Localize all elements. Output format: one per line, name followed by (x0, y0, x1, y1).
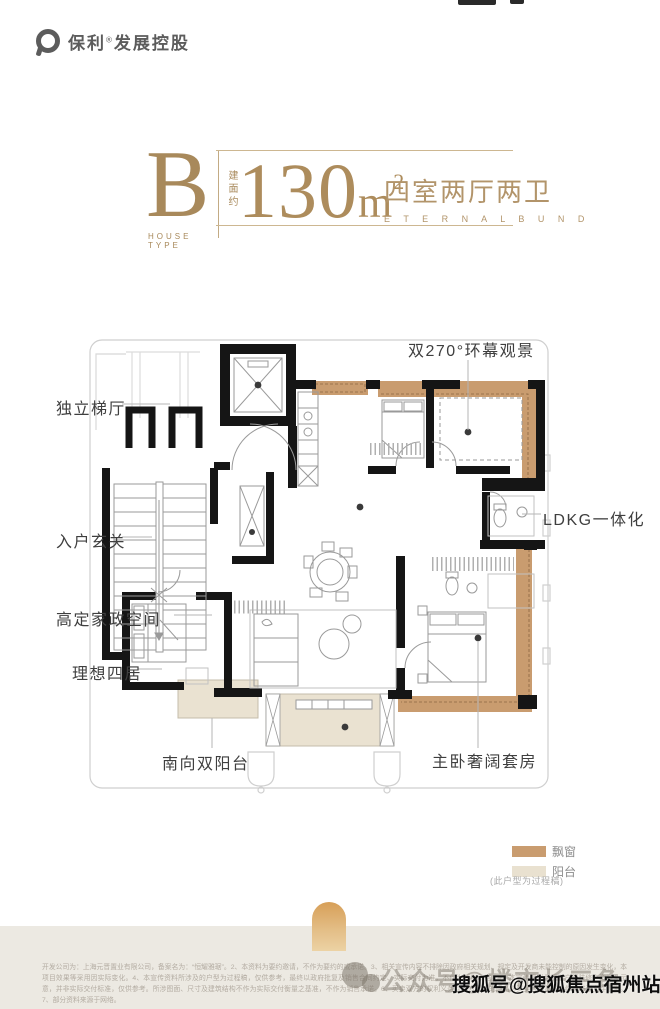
callout-panoramic-view: 双270°环幕观景 (408, 337, 535, 361)
doors (158, 424, 506, 668)
callout-ldkg: LDKG一体化 (543, 506, 645, 530)
legend-note: (此户型为过程稿) (490, 874, 564, 887)
elevator-shaft (230, 354, 286, 416)
wechat-icon-small (362, 974, 380, 992)
legend-item-bay-window: 飘窗 (512, 843, 576, 860)
arch-motif (312, 902, 346, 951)
callout-master-suite: 主卧奢阔套房 (432, 748, 537, 772)
legend-label: 飘窗 (552, 843, 576, 860)
corner-bedroom (440, 398, 522, 460)
bollard-left (248, 752, 274, 786)
bay-window-swatch (512, 846, 546, 857)
sofa (250, 610, 396, 688)
watermark-sohu: 搜狐号@搜狐焦点宿州站 (452, 970, 660, 997)
dining-table (304, 542, 357, 601)
poster-page: 保利®发展控股 B HOUSE TYPE 建面约 130m2 四室两厅两卫 E … (0, 0, 660, 1009)
callout-housekeeping-space: 高定家政空间 (56, 606, 161, 630)
tv-unit (296, 700, 372, 709)
balconies (178, 680, 394, 746)
callout-entry-foyer: 入户玄关 (56, 528, 126, 552)
bollard-right (374, 752, 400, 786)
kitchen (298, 392, 318, 486)
callout-south-double-balcony: 南向双阳台 (162, 750, 250, 774)
callout-private-elevator-hall: 独立梯厅 (56, 395, 126, 419)
callout-four-bedrooms: 理想四居 (72, 660, 142, 684)
